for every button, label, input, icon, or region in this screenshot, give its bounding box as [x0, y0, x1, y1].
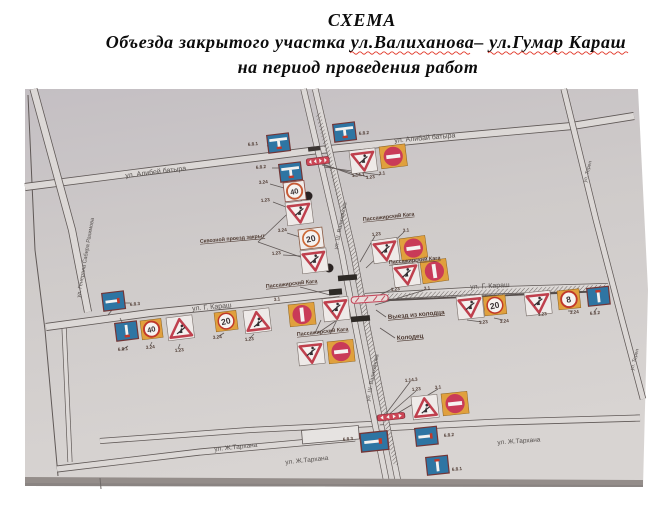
- svg-text:3.24: 3.24: [500, 318, 510, 324]
- svg-text:1.23: 1.23: [538, 311, 548, 317]
- svg-text:3.1: 3.1: [274, 296, 281, 302]
- svg-text:СХЕМА: СХЕМА: [328, 10, 396, 30]
- svg-text:3.24: 3.24: [259, 179, 269, 185]
- svg-text:1.23: 1.23: [272, 250, 282, 256]
- svg-text:1.23: 1.23: [245, 336, 255, 342]
- svg-text:3.24: 3.24: [278, 227, 288, 233]
- svg-text:3.24: 3.24: [570, 309, 580, 315]
- svg-text:Объезда закрытого участка ул.В: Объезда закрытого участка ул.Валиханова–…: [106, 32, 626, 52]
- svg-text:1.23: 1.23: [479, 319, 489, 325]
- svg-text:1.23: 1.23: [366, 174, 376, 180]
- svg-text:1.23: 1.23: [412, 386, 422, 392]
- svg-text:3.1: 3.1: [379, 170, 386, 176]
- svg-text:1.23: 1.23: [261, 197, 271, 203]
- svg-text:на период проведения работ: на период проведения работ: [238, 57, 479, 77]
- svg-text:1.23: 1.23: [372, 231, 382, 237]
- svg-text:3.24: 3.24: [213, 334, 223, 340]
- svg-text:3.1: 3.1: [435, 384, 442, 390]
- svg-text:3.1: 3.1: [424, 285, 431, 291]
- svg-text:1.23: 1.23: [391, 286, 401, 292]
- svg-text:1.23: 1.23: [175, 347, 185, 353]
- svg-text:3.1: 3.1: [403, 227, 410, 233]
- svg-text:3.24: 3.24: [146, 344, 156, 350]
